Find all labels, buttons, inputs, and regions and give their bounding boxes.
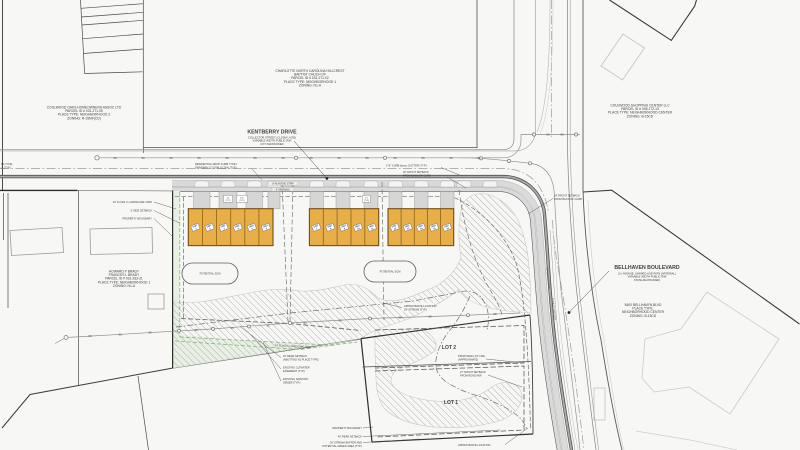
svg-text:24' FRONT SETBACK: 24' FRONT SETBACK [554, 194, 580, 198]
svg-text:POTENTIAL SCM: POTENTIAL SCM [380, 270, 401, 274]
svg-text:PROPOSED LOT LINE: PROPOSED LOT LINE [458, 354, 485, 358]
svg-text:FROM BACK OF CURB: FROM BACK OF CURB [403, 173, 431, 177]
svg-text:SS: SS [141, 157, 145, 160]
svg-text:SS: SS [428, 316, 432, 319]
svg-text:(APPROXIMATE): (APPROXIMATE) [458, 357, 478, 361]
svg-text:6' SIDEWALK: 6' SIDEWALK [276, 188, 291, 191]
svg-text:RESIDENTIAL DROP CURB TYPE I: RESIDENTIAL DROP CURB TYPE I [195, 162, 237, 166]
svg-text:EXISTING CLTWATER: EXISTING CLTWATER [283, 366, 310, 370]
svg-text:SS: SS [398, 317, 402, 320]
svg-text:SEWER (TYP.): SEWER (TYP.) [283, 380, 301, 384]
svg-text:SS: SS [477, 157, 481, 160]
svg-text:SS: SS [338, 319, 342, 322]
svg-text:10' CLASS C LANDSCAPE YARD: 10' CLASS C LANDSCAPE YARD [113, 200, 152, 204]
svg-text:FROM ROAD R/W: FROM ROAD R/W [460, 373, 482, 377]
svg-text:SS: SS [230, 327, 234, 330]
svg-text:(ABUTTING N1 PLACE TYPE): (ABUTTING N1 PLACE TYPE) [283, 357, 319, 361]
svg-text:(TYP.): (TYP.) [364, 200, 370, 202]
svg-text:POTENTIAL GREEN AREA (TYP.): POTENTIAL GREEN AREA (TYP.) [322, 444, 362, 448]
svg-text:SS: SS [197, 157, 201, 160]
svg-text:SS: SS [169, 157, 173, 160]
svg-text:(TYP.): (TYP.) [239, 200, 245, 202]
svg-text:30' STREAM BUFFER AND: 30' STREAM BUFFER AND [330, 441, 362, 445]
svg-text:SS: SS [113, 157, 117, 160]
svg-text:POTENTIAL SCM: POTENTIAL SCM [200, 272, 221, 276]
svg-text:ZONING: B-15CD: ZONING: B-15CD [630, 314, 657, 318]
svg-text:SS: SS [560, 134, 564, 137]
svg-text:40' REAR SETBACK: 40' REAR SETBACK [338, 435, 362, 439]
svg-text:SS: SS [118, 333, 122, 336]
svg-text:SS: SS [303, 321, 307, 324]
svg-text:EXISTING SANITARY: EXISTING SANITARY [283, 377, 309, 381]
svg-text:20' REAR SETBACK: 20' REAR SETBACK [283, 354, 307, 358]
svg-text:ZONING: N1-A: ZONING: N1-A [113, 284, 136, 288]
svg-text:27' FRONT SETBACK: 27' FRONT SETBACK [460, 370, 486, 374]
svg-text:SS: SS [493, 313, 497, 316]
svg-text:LL (TYP.): LL (TYP.) [1, 166, 11, 169]
svg-text:APPROXIMATE LOCATION: APPROXIMATE LOCATION [458, 443, 490, 447]
svg-text:PROPERTY BOUNDARY: PROPERTY BOUNDARY [332, 426, 362, 430]
svg-text:EASEMENT (TYP.): EASEMENT (TYP.) [283, 369, 305, 373]
svg-text:2'-6" CURB &amp; GUTTER (TYP.): 2'-6" CURB &amp; GUTTER (TYP.) [386, 164, 427, 168]
svg-text:5' SIDE SETBACK: 5' SIDE SETBACK [130, 209, 152, 213]
svg-text:DRIVEWAY (CLDSM 10.25A) (TYP.): DRIVEWAY (CLDSM 10.25A) (TYP.) [195, 165, 237, 169]
svg-text:ZONING: B-15CD: ZONING: B-15CD [627, 114, 654, 118]
svg-text:20' FRONT SETBACK: 20' FRONT SETBACK [403, 170, 429, 174]
svg-text:ZONING: R-15MF(CD): ZONING: R-15MF(CD) [67, 116, 101, 120]
svg-text:SS: SS [88, 335, 92, 338]
svg-text:(TYP.): (TYP.) [225, 200, 231, 202]
svg-text:SS: SS [365, 157, 369, 160]
svg-text:SS: SS [148, 332, 152, 335]
svg-text:SS: SS [421, 157, 425, 160]
svg-text:BELLHAVEN BOULEVARD: BELLHAVEN BOULEVARD [614, 265, 679, 271]
svg-text:SS: SS [281, 157, 285, 160]
svg-text:STATE-MAINTAINED): STATE-MAINTAINED) [634, 278, 661, 282]
svg-text:SS: SS [266, 324, 270, 327]
svg-text:SS: SS [225, 157, 229, 160]
svg-text:ZONING: N1-A: ZONING: N1-A [299, 83, 322, 87]
svg-text:OF STREAM (TYP.): OF STREAM (TYP.) [404, 307, 427, 311]
svg-text:KENTBERRY DRIVE: KENTBERRY DRIVE [247, 130, 297, 136]
svg-text:SS: SS [194, 329, 198, 332]
svg-text:LOT 2: LOT 2 [442, 345, 456, 351]
svg-text:8' PLANTING STRIP: 8' PLANTING STRIP [272, 183, 294, 186]
svg-text:SS: SS [546, 134, 550, 137]
svg-text:PROPERTY BOUNDARY: PROPERTY BOUNDARY [122, 217, 152, 221]
svg-text:LOT 1: LOT 1 [444, 400, 458, 406]
svg-text:SS: SS [393, 157, 397, 160]
svg-text:SS: SS [449, 157, 453, 160]
svg-text:SS: SS [337, 157, 341, 160]
svg-text:SS: SS [253, 157, 257, 160]
svg-text:APPROXIMATE LOCATION: APPROXIMATE LOCATION [404, 304, 436, 308]
svg-text:SS: SS [309, 157, 313, 160]
svg-text:FROM BACK OF CURB: FROM BACK OF CURB [554, 197, 582, 201]
svg-text:CITY-MAINTAINED: CITY-MAINTAINED [260, 142, 283, 146]
